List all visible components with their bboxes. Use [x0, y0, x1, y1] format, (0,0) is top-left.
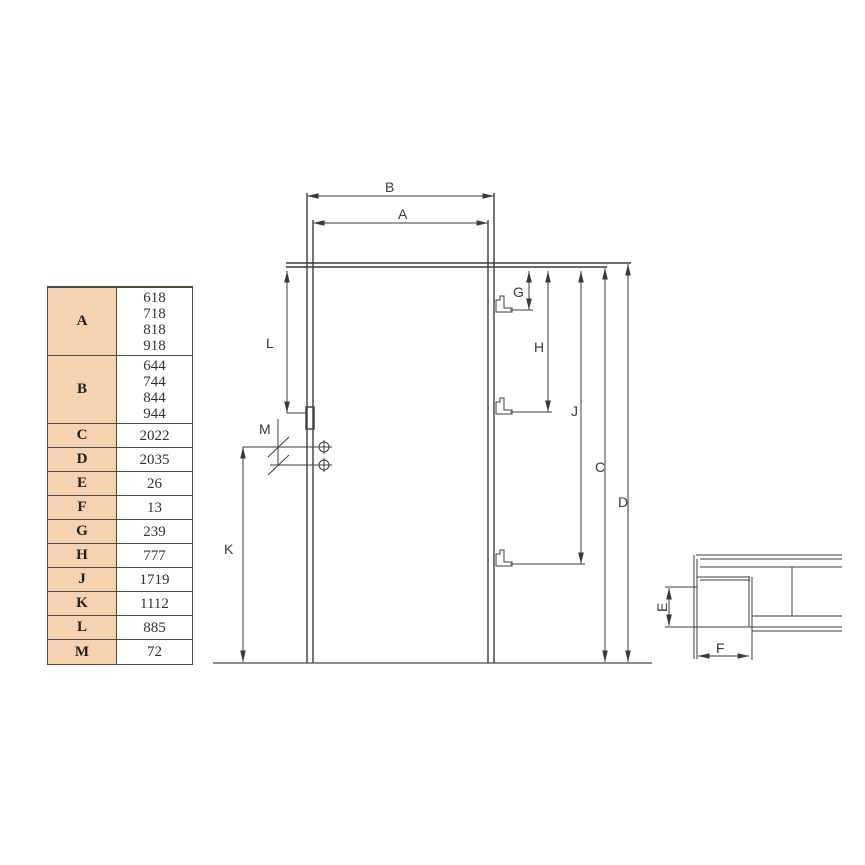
dim-label-f: F — [716, 640, 725, 656]
dim-label-h: H — [534, 339, 544, 355]
dim-label-l: L — [266, 335, 274, 351]
hinge-icon-middle — [496, 398, 512, 414]
dim-label-c: C — [595, 459, 605, 475]
door-leaf — [286, 220, 607, 663]
door-frame — [286, 193, 631, 663]
dim-label-m: M — [259, 421, 271, 437]
door-dimensions-sheet: A618718818918B644744844944C2022D2035E26F… — [0, 0, 865, 865]
dim-label-j: J — [571, 403, 578, 419]
dim-label-k: K — [224, 541, 234, 557]
dim-label-g: G — [513, 284, 524, 300]
frame-profile-detail — [665, 555, 842, 660]
dim-label-b: B — [385, 179, 394, 195]
hinge-icon-bottom — [496, 550, 512, 566]
dim-label-d: D — [618, 494, 628, 510]
dim-label-e: E — [654, 603, 670, 612]
door-technical-drawing: B A G H J C D L K M E F — [0, 0, 865, 865]
hinge-icon-top — [496, 296, 512, 312]
dim-label-a: A — [398, 206, 408, 222]
